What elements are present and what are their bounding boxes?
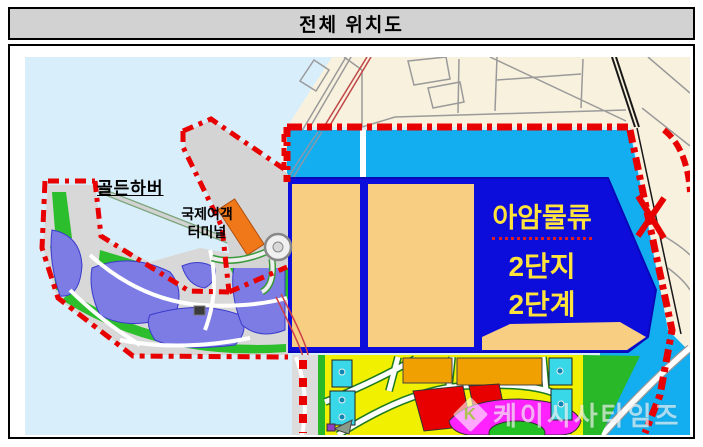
site-block-1 <box>292 184 360 347</box>
label-logistics-phase: 2단계 <box>452 286 632 324</box>
map-frame: 골든하버 국제여객 터미널 아암물류 2단지 2단계 K 케이시사타임즈 <box>8 44 695 439</box>
watermark: K 케이시사타임즈 <box>458 396 681 433</box>
site-block-3 <box>482 322 646 350</box>
label-logistics-complex: 2단지 <box>452 248 632 286</box>
screenshot-page: 전체 위치도 <box>0 0 703 447</box>
label-terminal-line2: 터미널 <box>147 224 267 242</box>
district-orange-1 <box>403 358 452 383</box>
label-terminal-line1: 국제여객 <box>147 206 267 224</box>
label-international-terminal: 국제여객 터미널 <box>147 206 267 241</box>
label-golden-harbor: 골든하버 <box>97 174 164 199</box>
watermark-logo-icon: K <box>453 397 488 432</box>
page-title: 전체 위치도 <box>299 10 404 37</box>
small-building <box>194 306 205 315</box>
map-title-bar: 전체 위치도 <box>8 7 695 40</box>
district-orange-2 <box>457 358 542 385</box>
watermark-text: 케이시사타임즈 <box>493 396 681 433</box>
label-logistics-name: 아암물류 <box>492 196 591 240</box>
label-aam-logistics: 아암물류 2단지 2단계 <box>452 196 632 324</box>
